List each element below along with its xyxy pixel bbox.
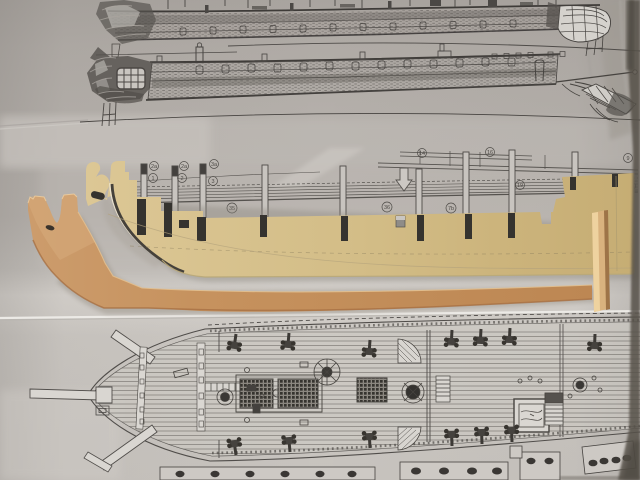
svg-text:19: 19 <box>517 183 523 189</box>
svg-text:14: 14 <box>419 151 425 157</box>
svg-text:9: 9 <box>626 156 629 162</box>
svg-text:1: 1 <box>151 176 154 182</box>
svg-text:2a: 2a <box>151 164 158 170</box>
svg-text:3: 3 <box>211 179 214 185</box>
svg-text:16: 16 <box>487 150 493 156</box>
svg-text:3a: 3a <box>211 162 218 168</box>
svg-text:7b: 7b <box>448 206 454 212</box>
svg-text:2: 2 <box>180 176 183 182</box>
svg-text:36: 36 <box>384 205 390 211</box>
svg-text:2a: 2a <box>181 164 188 170</box>
